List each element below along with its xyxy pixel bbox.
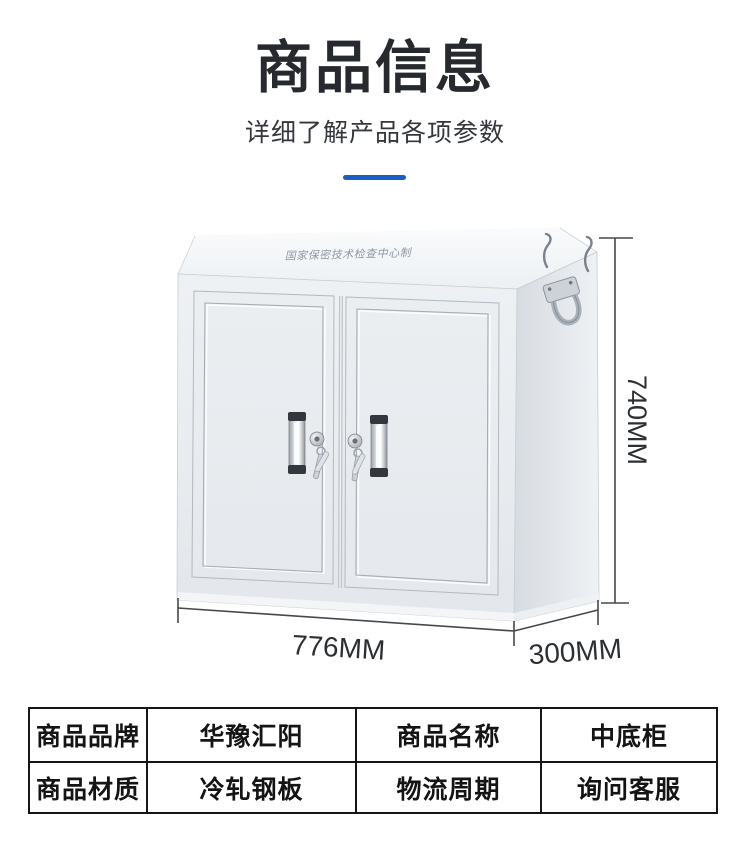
spec-label-material: 商品材质 — [29, 762, 147, 813]
cabinet-door-right — [345, 297, 499, 595]
spec-row: 商品品牌 华豫汇阳 商品名称 中底柜 — [29, 708, 717, 762]
dim-depth-label: 300MM — [528, 633, 623, 670]
spec-table: 商品品牌 华豫汇阳 商品名称 中底柜 商品材质 冷轧钢板 物流周期 询问客服 — [28, 707, 718, 814]
spec-label-name: 商品名称 — [356, 708, 541, 762]
cabinet: 国家保密技术检查中心制 — [177, 228, 599, 621]
spec-value-logistics: 询问客服 — [541, 762, 717, 813]
dim-width-label: 776MM — [291, 629, 386, 666]
spec-label-logistics: 物流周期 — [356, 762, 541, 813]
door-handle-right — [370, 415, 388, 477]
spec-label-brand: 商品品牌 — [29, 708, 147, 762]
door-handle-left — [288, 412, 306, 474]
product-info-page: 商品信息 详细了解产品各项参数 — [0, 0, 750, 854]
spec-value-material: 冷轧钢板 — [147, 762, 356, 813]
spec-row: 商品材质 冷轧钢板 物流周期 询问客服 — [29, 762, 717, 813]
spec-value-brand: 华豫汇阳 — [147, 708, 356, 762]
page-title: 商品信息 — [0, 22, 750, 104]
product-figure: 国家保密技术检查中心制 — [0, 210, 750, 680]
page-subtitle: 详细了解产品各项参数 — [0, 113, 750, 149]
dim-height-label: 740MM — [622, 375, 652, 465]
accent-divider — [343, 175, 406, 180]
spec-value-name: 中底柜 — [541, 708, 717, 762]
